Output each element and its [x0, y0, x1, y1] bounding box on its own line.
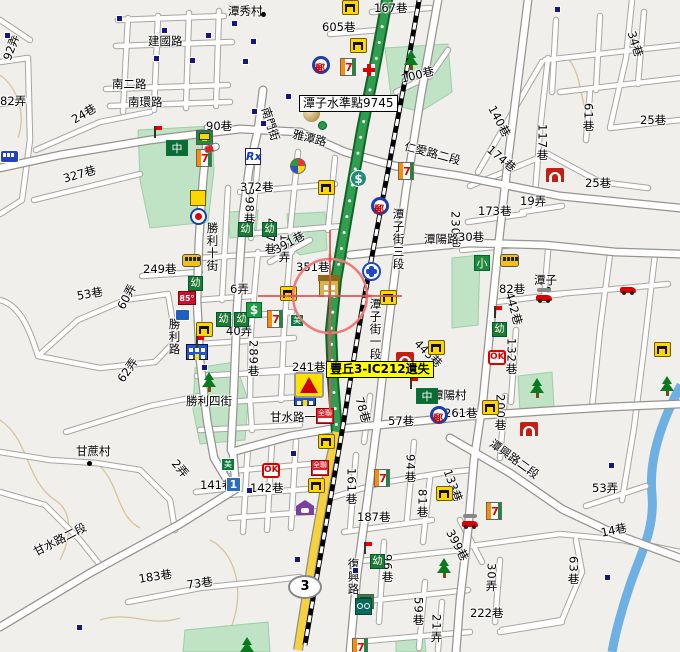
- street-label: 25巷: [585, 178, 611, 190]
- kindergarten-icon[interactable]: 幼: [188, 276, 203, 291]
- gas-station-icon[interactable]: [190, 208, 207, 225]
- poi-square-icon[interactable]: [285, 93, 292, 100]
- street-label: 222巷: [470, 608, 503, 620]
- street-label: 81巷: [416, 489, 428, 518]
- poi-square-icon[interactable]: [201, 364, 208, 371]
- seven-eleven-icon[interactable]: 7: [352, 638, 368, 652]
- tree-icon[interactable]: [240, 637, 255, 652]
- poi-square-icon[interactable]: [4, 32, 11, 39]
- street-label: 勝利十街: [206, 222, 218, 272]
- poi-square-icon[interactable]: [246, 487, 253, 494]
- street-label: 6弄: [230, 284, 249, 296]
- kindergarten-icon[interactable]: 幼: [238, 222, 253, 237]
- red-cross-icon[interactable]: [363, 64, 375, 76]
- seven-eleven-icon[interactable]: 7: [486, 502, 502, 520]
- bench-icon[interactable]: [308, 478, 325, 493]
- street-label: 94巷: [404, 454, 416, 483]
- street-label: 173巷: [478, 206, 511, 218]
- bench-icon[interactable]: [654, 342, 671, 357]
- street-label: 30巷: [458, 232, 484, 244]
- temple-red-icon[interactable]: [546, 168, 564, 182]
- poi-square-icon[interactable]: [76, 624, 83, 631]
- bus-blue-icon[interactable]: [0, 150, 19, 163]
- street-label: 132巷: [505, 338, 517, 375]
- street-label: 40弄: [226, 326, 252, 338]
- street-label: 53弄: [592, 483, 618, 495]
- place-label: 潭秀村: [228, 3, 263, 19]
- bench-icon[interactable]: [342, 0, 359, 15]
- px-mart-icon[interactable]: 全聯: [316, 408, 334, 424]
- street-label: 21弄: [430, 614, 442, 643]
- ok-mart-icon[interactable]: OK: [262, 463, 280, 478]
- street-label: 潭陽路: [424, 234, 459, 246]
- simple-mart-icon[interactable]: 美: [221, 458, 235, 471]
- bench-icon[interactable]: [196, 322, 213, 337]
- street-label: 351巷: [296, 262, 329, 274]
- bench-icon[interactable]: [318, 434, 335, 449]
- kindergarten-icon[interactable]: 幼: [216, 312, 231, 327]
- map-canvas[interactable]: 3 建國路南二路南環路92弄82弄24巷90巷327巷605巷167巷100巷3…: [0, 0, 680, 652]
- street-label: 82弄: [0, 96, 26, 108]
- kindergarten-icon[interactable]: 幼: [262, 222, 277, 237]
- bank-teal-icon[interactable]: $: [350, 170, 367, 187]
- bus-yellow-icon[interactable]: [182, 254, 201, 267]
- street-label: 復興路: [347, 558, 359, 596]
- tree-icon[interactable]: [404, 50, 419, 70]
- street-label: 勝利四街: [186, 396, 232, 408]
- bench-icon[interactable]: [436, 486, 453, 501]
- river: [612, 385, 680, 652]
- callout-alert: 豐丘3-IC212遺失: [326, 361, 434, 378]
- bench-icon[interactable]: [380, 290, 397, 305]
- flagpole-icon[interactable]: [364, 542, 372, 554]
- poi-square-icon[interactable]: [260, 120, 267, 127]
- tree-icon[interactable]: [202, 372, 217, 392]
- flagpole-icon[interactable]: [196, 336, 204, 348]
- poi-square-icon[interactable]: [608, 462, 615, 469]
- cafe-85c-icon[interactable]: 85°: [178, 291, 196, 305]
- post-office-icon[interactable]: 郵: [371, 197, 389, 215]
- post-office-icon[interactable]: 郵: [312, 56, 330, 74]
- poi-square-icon[interactable]: [161, 27, 168, 34]
- poi-square-icon[interactable]: [153, 55, 160, 62]
- tree-icon[interactable]: [437, 558, 452, 578]
- poi-square-icon[interactable]: [554, 6, 561, 13]
- kindergarten-icon[interactable]: 幼: [370, 554, 385, 569]
- flagpole-icon[interactable]: [494, 306, 502, 318]
- poi-square-icon[interactable]: [290, 450, 297, 457]
- street-label: 187巷: [357, 512, 390, 524]
- street-label: 建國路: [148, 36, 183, 48]
- blue-store-icon[interactable]: [175, 309, 190, 321]
- school-mid-icon[interactable]: 中: [166, 140, 188, 156]
- street-label: 161巷: [345, 468, 357, 505]
- seven-eleven-icon[interactable]: 7: [398, 162, 414, 180]
- school-mid-icon[interactable]: 中: [416, 388, 438, 404]
- poi-square-icon[interactable]: [205, 32, 212, 39]
- bus-yellow-icon[interactable]: [500, 254, 519, 267]
- pinwheel-icon[interactable]: [290, 158, 306, 174]
- tree-icon[interactable]: [660, 376, 675, 396]
- first-bank-icon[interactable]: 1: [226, 477, 241, 492]
- place-label: 潭子: [534, 272, 557, 288]
- place-dot: [87, 461, 92, 466]
- flagpole-icon[interactable]: [154, 126, 162, 138]
- street-label: 167巷: [374, 3, 407, 15]
- seven-eleven-icon[interactable]: 7: [374, 469, 390, 487]
- bank-green-icon[interactable]: $: [246, 302, 262, 318]
- tree-icon[interactable]: [530, 378, 545, 398]
- poi-square-icon[interactable]: [352, 567, 359, 574]
- street-label: 61巷: [582, 103, 594, 132]
- street-label: 63巷: [567, 556, 579, 585]
- bench-icon[interactable]: [482, 400, 499, 415]
- simple-mart-icon[interactable]: 美: [290, 314, 304, 327]
- kindergarten-icon[interactable]: 幼: [492, 322, 507, 337]
- bench-icon[interactable]: [428, 340, 445, 355]
- street-label: 潭子街一段: [369, 298, 381, 361]
- poi-square-icon[interactable]: [250, 38, 257, 45]
- poi-square-icon[interactable]: [231, 20, 238, 27]
- school-small-icon[interactable]: 小: [474, 255, 490, 271]
- street-label: 82巷: [499, 284, 525, 296]
- car-repair-icon[interactable]: [462, 514, 479, 530]
- street-label: 59巷: [412, 597, 424, 626]
- street-label: 25巷: [640, 115, 666, 127]
- street-label: 57巷: [388, 416, 414, 428]
- street-label: 南環路: [128, 97, 163, 109]
- bench-icon[interactable]: [280, 286, 297, 301]
- street-label: 勝利路: [168, 318, 180, 356]
- tra-station-icon[interactable]: [362, 262, 381, 281]
- poi-square-icon[interactable]: [294, 556, 301, 563]
- warning-triangle-icon[interactable]: [294, 372, 324, 398]
- street-label: 605巷: [322, 22, 355, 34]
- street-label: 398巷: [243, 188, 255, 225]
- poi-square-icon[interactable]: [189, 57, 196, 64]
- temple-red-icon[interactable]: [520, 422, 538, 436]
- place-label: 甘蔗村: [76, 443, 111, 459]
- bench-icon[interactable]: [318, 180, 335, 195]
- callout-benchmark: 潭子水準點9745: [299, 95, 398, 112]
- flagpole-icon[interactable]: [410, 377, 418, 389]
- street-label: 30弄: [485, 563, 497, 592]
- poi-square-icon[interactable]: [604, 574, 611, 581]
- bench-icon[interactable]: [350, 38, 367, 53]
- temple-swastika-icon[interactable]: [190, 190, 206, 206]
- street-label: 289巷: [247, 340, 259, 377]
- street-label: 南二路: [112, 79, 147, 91]
- street-label: 潭子街三段: [392, 208, 404, 271]
- rail-building-icon[interactable]: [319, 278, 339, 297]
- street-label: 261巷: [444, 408, 477, 420]
- place-dot: [261, 12, 266, 17]
- seven-eleven-icon[interactable]: 7: [340, 58, 356, 76]
- ok-mart-icon[interactable]: OK: [488, 350, 506, 365]
- highway-shield: 3: [288, 575, 322, 599]
- green-ball-icon[interactable]: [318, 121, 327, 130]
- pharmacy-rx-icon[interactable]: Rx: [245, 148, 261, 165]
- poi-square-icon[interactable]: [116, 15, 123, 22]
- street-label: 249巷: [143, 264, 176, 276]
- street-label: 117巷: [536, 124, 548, 161]
- seven-eleven-icon[interactable]: 7: [267, 310, 283, 328]
- px-mart-icon[interactable]: 全聯: [311, 460, 329, 476]
- poi-square-icon[interactable]: [242, 58, 249, 65]
- street-label: 142巷: [250, 483, 283, 495]
- car-repair-icon[interactable]: [536, 288, 553, 304]
- post-office-icon[interactable]: 郵: [430, 406, 448, 424]
- poi-square-icon[interactable]: [251, 108, 258, 115]
- shopping-cart-icon[interactable]: [196, 130, 213, 145]
- bike-shop-icon[interactable]: [355, 598, 372, 615]
- red-car-icon[interactable]: [620, 280, 637, 296]
- street-label: 19弄: [520, 196, 546, 208]
